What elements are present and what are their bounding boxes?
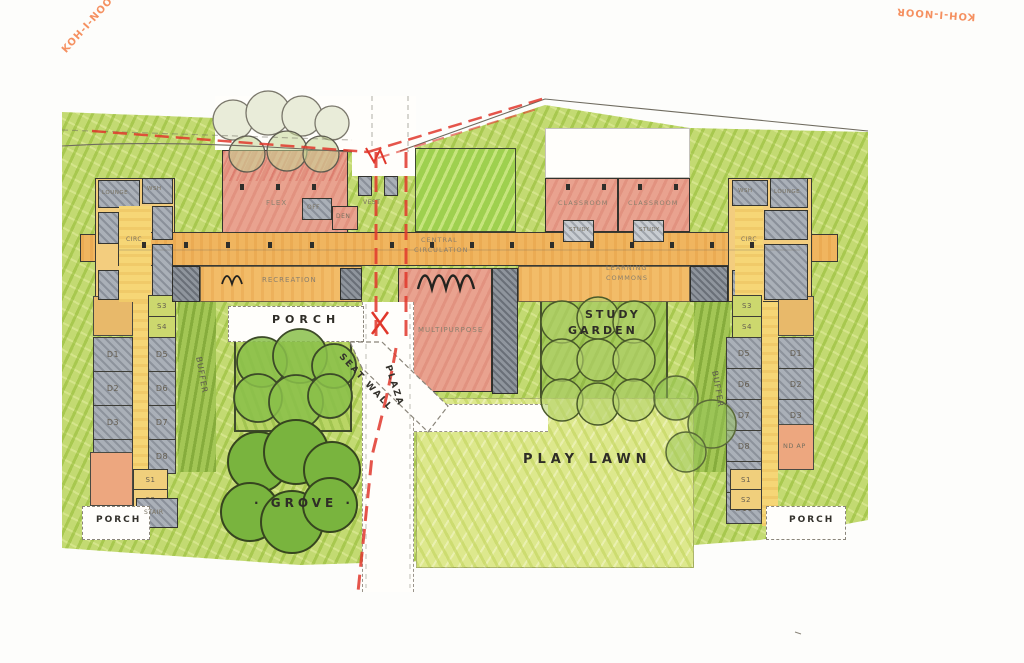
stair-label: STAIR [144,509,164,516]
right-circ-corridor [735,206,763,302]
study-a-label: STUDY [569,227,590,233]
dorm-room: D7 [148,405,176,440]
left-room [152,206,173,240]
classroom-a-label: CLASSROOM [558,199,608,207]
lounge-left-label: LOUNGE [102,190,128,196]
porch-center-label: PORCH [272,313,340,326]
left-room [152,244,173,300]
left-room [98,212,119,244]
left-study-boxes: S3S4 [148,296,176,338]
dorm-room: D7 [726,399,762,431]
circ-right-label: CIRC [741,236,757,243]
junction-block-right [690,266,728,302]
right-room [764,210,808,240]
service-strip [492,268,518,394]
right-s-boxes-bottom: S1S2 [730,470,762,510]
grove-label: · GROVE · [254,496,354,510]
flex-roof-hatch [223,151,347,181]
buffer-strip-left [178,300,216,472]
junction-block-left [172,266,200,302]
study-garden-label-1: STUDY [585,308,641,321]
s-room: S1 [730,469,762,490]
left-dorm-column-inner: D5D6D7D8 [148,338,176,474]
study-garden-label-2: GARDEN [568,324,638,337]
green-roof-block [415,148,516,232]
left-circ-corridor [119,206,151,302]
recreation-band [200,266,362,302]
left-room [98,270,119,300]
grove-courtyard [234,336,352,432]
plaza-walk [362,302,414,592]
left-bar-salmon-box [90,452,133,506]
dorm-room: D1 [778,337,814,369]
dorm-room: D8 [726,430,762,462]
pencil-tick [795,632,801,634]
right-study-boxes: S3S4 [732,296,762,338]
paper-patch-right [545,128,690,178]
study-room: S3 [732,295,762,317]
study-room: S4 [732,316,762,338]
vestibule-wall [384,176,398,196]
circ-left-label: CIRC [126,236,142,243]
study-b-label: STUDY [639,227,660,233]
central-circulation-label-1: CENTRAL [421,236,458,244]
study-room: S4 [148,316,176,338]
watermark-koh-i-noor-left: KOH-I-NOOR [60,0,121,55]
recreation-label: RECREATION [262,276,317,284]
classroom-b-label: CLASSROOM [628,199,678,207]
flex-label: FLEX [266,199,287,207]
dorm-room: D5 [726,337,762,369]
vest-label: VEST [363,199,380,206]
dorm-room: D6 [726,368,762,400]
watermark-koh-i-noor-right: KOH-I-NOOR [896,5,976,22]
nd-ap-label: ND AP [783,442,806,450]
wsh-right-label: WSH [738,188,753,194]
left-bar-topbox [93,296,133,336]
den-label: DEN [336,213,350,220]
central-circulation-label-2: CIRCULATION [414,246,469,254]
porch-bottom-right-label: PORCH [789,515,834,525]
vestibule-wall [358,176,372,196]
right-bar-topbox [778,296,814,336]
scanned-site-plan-sketch: KOH-I-NOOR KOH-I-NOOR S3S4 D1D2D3D4 D5D6… [0,0,1024,663]
porch-bottom-left-label: PORCH [96,515,141,525]
s-room: S2 [730,489,762,510]
office-label: OFF [307,204,320,211]
play-lawn-label: PLAY LAWN [523,452,652,467]
s-room: S1 [133,469,168,490]
dorm-room: D2 [778,368,814,400]
right-bar-corridor [762,302,778,526]
dorm-room: D5 [148,337,176,372]
garden-path [414,404,548,432]
learning-commons-band [518,266,690,302]
paper-patch-top-trees [215,96,355,150]
right-room [764,244,808,300]
core-block [340,268,362,300]
lounge-right-label: LOUNGE [774,189,800,195]
dorm-room: D1 [93,337,133,372]
learning-commons-label-2: COMMONS [606,274,648,282]
classroom-divider [617,178,619,232]
dorm-room: D3 [93,405,133,440]
dorm-room: D6 [148,371,176,406]
learning-commons-label-1: LEARNING [606,264,647,272]
multipurpose-label: MULTIPURPOSE [418,326,483,334]
dorm-room: D2 [93,371,133,406]
wsh-left-label: WSH [147,186,162,192]
paper-patch-entry [352,96,416,176]
